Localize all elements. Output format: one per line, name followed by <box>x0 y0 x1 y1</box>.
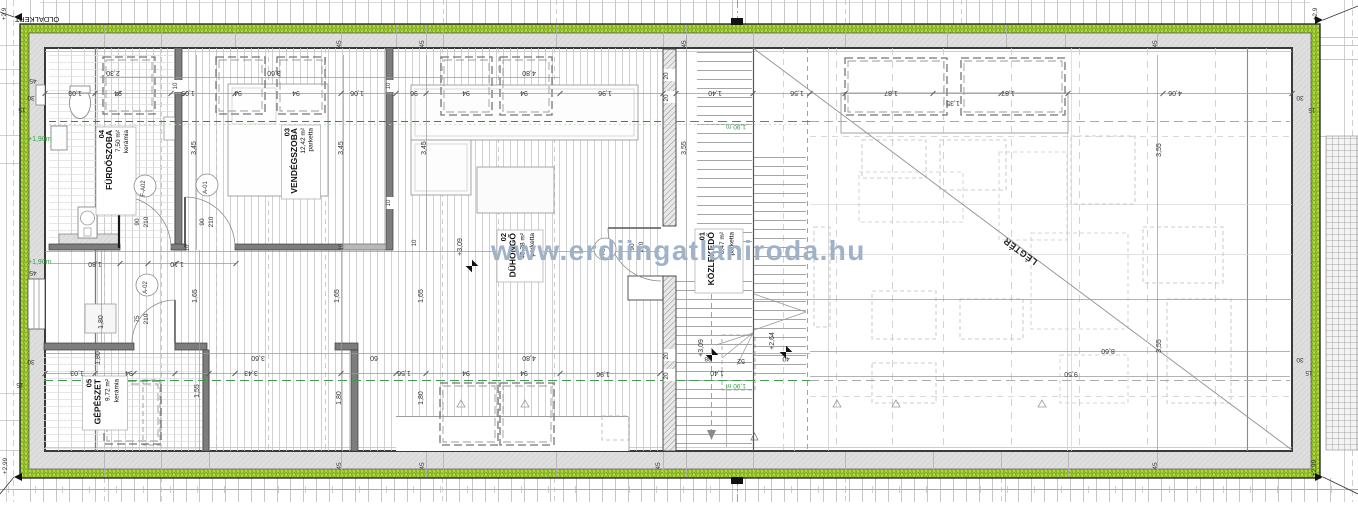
svg-text:20: 20 <box>663 72 670 80</box>
svg-text:1,03: 1,03 <box>70 369 84 376</box>
svg-text:4,80: 4,80 <box>522 69 536 76</box>
svg-text:1,65: 1,65 <box>192 289 199 303</box>
svg-text:10: 10 <box>339 243 345 250</box>
svg-text:VENDÉGSZOBA: VENDÉGSZOBA <box>289 128 299 194</box>
svg-text:3,55: 3,55 <box>1156 339 1163 353</box>
svg-text:1,87: 1,87 <box>1001 89 1015 96</box>
svg-text:GÉPÉSZET: GÉPÉSZET <box>93 378 103 424</box>
svg-text:94: 94 <box>292 89 300 96</box>
svg-text:210: 210 <box>208 216 215 227</box>
svg-text:1,90 m: 1,90 m <box>726 123 746 130</box>
svg-text:1,56: 1,56 <box>790 89 804 96</box>
svg-text:7,50 m²: 7,50 m² <box>115 129 122 152</box>
svg-text:45: 45 <box>1152 462 1159 470</box>
svg-text:10: 10 <box>386 199 392 206</box>
svg-text:15: 15 <box>18 106 26 113</box>
svg-text:3,55: 3,55 <box>681 141 688 155</box>
svg-text:96: 96 <box>410 89 418 96</box>
svg-text:210: 210 <box>143 313 150 324</box>
svg-text:9,72 m²: 9,72 m² <box>105 378 112 401</box>
svg-text:94: 94 <box>520 369 528 376</box>
svg-text:20: 20 <box>663 94 670 102</box>
svg-text:1,90 m: 1,90 m <box>726 382 746 389</box>
svg-text:+2,99: +2,99 <box>1311 459 1318 476</box>
svg-text:1,40: 1,40 <box>708 89 722 96</box>
svg-text:90: 90 <box>134 218 141 226</box>
svg-text:1,65: 1,65 <box>334 289 341 303</box>
svg-text:1,80: 1,80 <box>98 315 105 329</box>
svg-text:94: 94 <box>234 89 242 96</box>
svg-text:1,80: 1,80 <box>336 391 343 405</box>
svg-text:45: 45 <box>655 462 662 470</box>
svg-text:FÜRDŐSZOBA: FÜRDŐSZOBA <box>103 130 114 190</box>
svg-text:30: 30 <box>27 358 35 365</box>
svg-text:www.erdiingatlaniroda.hu: www.erdiingatlaniroda.hu <box>490 235 866 266</box>
svg-text:3,45: 3,45 <box>421 141 428 155</box>
svg-text:75: 75 <box>134 315 141 323</box>
svg-text:1,96: 1,96 <box>598 89 612 96</box>
svg-text:45: 45 <box>336 40 343 48</box>
svg-text:10: 10 <box>386 82 392 89</box>
svg-text:10: 10 <box>412 239 418 246</box>
svg-text:1,35: 1,35 <box>946 99 960 106</box>
svg-text:4,80: 4,80 <box>522 354 536 361</box>
svg-text:+2,9: +2,9 <box>1 7 8 20</box>
svg-text:45: 45 <box>336 462 343 470</box>
svg-text:1,80: 1,80 <box>418 391 425 405</box>
svg-text:1,03: 1,03 <box>68 89 82 96</box>
svg-text:1,10: 1,10 <box>170 260 184 267</box>
svg-text:94: 94 <box>462 369 470 376</box>
svg-text:20: 20 <box>663 372 670 380</box>
svg-text:kerámia: kerámia <box>123 130 130 154</box>
svg-text:94: 94 <box>462 89 470 96</box>
svg-text:A-02: A-02 <box>143 281 149 294</box>
svg-text:10: 10 <box>185 244 191 251</box>
svg-text:15: 15 <box>1308 106 1316 113</box>
svg-text:210: 210 <box>143 216 150 227</box>
svg-text:+2,64: +2,64 <box>769 332 776 350</box>
svg-text:20: 20 <box>663 352 670 360</box>
svg-text:45: 45 <box>1152 40 1159 48</box>
svg-text:52: 52 <box>737 357 745 364</box>
svg-text:9,50: 9,50 <box>1064 370 1078 377</box>
svg-text:1,40: 1,40 <box>710 369 724 376</box>
svg-text:94: 94 <box>125 369 133 376</box>
svg-text:10: 10 <box>173 82 179 89</box>
svg-text:30: 30 <box>1296 356 1304 363</box>
svg-text:15: 15 <box>1305 369 1313 376</box>
svg-text:30: 30 <box>1296 94 1304 101</box>
svg-text:4,06: 4,06 <box>1168 89 1182 96</box>
svg-text:1,80: 1,80 <box>95 351 102 365</box>
svg-text:1,96: 1,96 <box>596 370 610 377</box>
svg-text:1,56: 1,56 <box>397 369 411 376</box>
svg-text:90: 90 <box>199 218 206 226</box>
svg-text:3,55: 3,55 <box>1156 143 1163 157</box>
svg-text:+3,09: +3,09 <box>457 238 464 256</box>
svg-text:1,55: 1,55 <box>194 384 201 398</box>
svg-text:1,80: 1,80 <box>88 260 102 267</box>
svg-text:94: 94 <box>520 89 528 96</box>
svg-text:15: 15 <box>16 381 24 388</box>
svg-text:parketta: parketta <box>308 128 315 152</box>
svg-text:45: 45 <box>419 462 426 470</box>
svg-text:1,06: 1,06 <box>350 89 364 96</box>
svg-text:3,45: 3,45 <box>338 141 345 155</box>
svg-text:1,87: 1,87 <box>884 89 898 96</box>
svg-text:+3,09: +3,09 <box>698 339 705 357</box>
svg-text:45: 45 <box>419 40 426 48</box>
svg-text:F-A02: F-A02 <box>141 180 147 197</box>
svg-text:45: 45 <box>29 77 37 84</box>
svg-text:1,65: 1,65 <box>418 289 425 303</box>
svg-text:60: 60 <box>370 354 378 361</box>
svg-text:12,42 m²: 12,42 m² <box>300 127 307 153</box>
svg-text:+1,90m: +1,90m <box>28 259 52 266</box>
svg-text:kerámia: kerámia <box>114 379 121 403</box>
svg-text:3,60: 3,60 <box>267 69 281 76</box>
svg-text:45: 45 <box>681 40 688 48</box>
svg-text:3,45: 3,45 <box>191 141 198 155</box>
svg-text:3,43: 3,43 <box>244 369 258 376</box>
svg-text:+2,99: +2,99 <box>2 457 9 474</box>
svg-text:+1,90m: +1,90m <box>28 136 52 143</box>
svg-text:3,60: 3,60 <box>251 354 265 361</box>
svg-text:8,60: 8,60 <box>1101 347 1115 354</box>
svg-text:A-01: A-01 <box>203 181 209 194</box>
svg-text:30: 30 <box>27 94 35 101</box>
svg-text:45: 45 <box>29 269 37 276</box>
svg-text:2,30: 2,30 <box>106 69 120 76</box>
